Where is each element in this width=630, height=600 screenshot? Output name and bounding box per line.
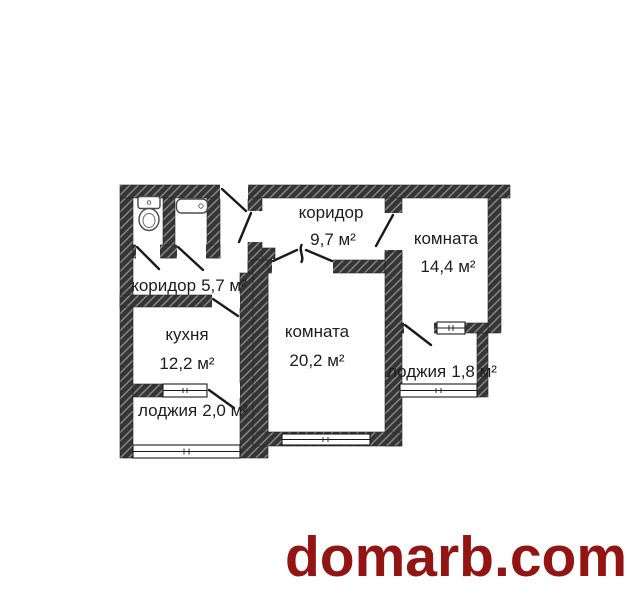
wall-right-outer — [488, 198, 501, 333]
toilet-icon — [138, 197, 160, 231]
label-loggia-right-area: 1,8 м² — [451, 362, 497, 381]
label-loggia-bottom: лоджия2,0 м² — [138, 401, 248, 420]
label-kitchen-name: кухня — [165, 325, 208, 344]
room144-window — [437, 322, 465, 334]
label-kitchen-area: 12,2 м² — [159, 354, 214, 373]
room202-window — [282, 434, 370, 445]
label-corridor-small-area: 5,7 м² — [201, 276, 247, 295]
label-room-center-name: комната — [285, 322, 350, 341]
room144-door-opening — [384, 213, 403, 250]
loggia20-door-opening — [207, 383, 240, 398]
label-loggia-bottom-area: 2,0 м² — [202, 401, 248, 420]
label-loggia-bottom-name: лоджия — [138, 401, 197, 420]
watermark: domarb.com — [285, 525, 627, 589]
wall-top-outer — [120, 185, 510, 198]
label-loggia-right-name: лоджия — [387, 362, 446, 381]
wall-room202-left — [253, 260, 268, 446]
label-corridor-small: коридор5,7 м² — [131, 276, 247, 295]
apartment-floor-plan: коридор 9,7 м² комната 14,4 м² коридор5,… — [0, 0, 630, 600]
background — [0, 0, 630, 600]
bathtub-icon — [177, 199, 208, 213]
label-room-center-area: 20,2 м² — [289, 351, 344, 370]
label-corridor-top-name: коридор — [299, 203, 364, 222]
wall-room202-right — [385, 252, 402, 446]
label-corridor-small-name: коридор — [131, 276, 196, 295]
label-room-top-right-area: 14,4 м² — [420, 257, 475, 276]
wall-corridor-nub — [262, 248, 275, 260]
kitchen-window — [163, 384, 207, 397]
loggia20-window — [133, 445, 240, 458]
wall-left-outer — [120, 198, 133, 458]
page: коридор 9,7 м² комната 14,4 м² коридор5,… — [0, 0, 630, 600]
label-loggia-right: лоджия1,8 м² — [387, 362, 497, 381]
loggia18-window — [400, 384, 477, 397]
label-corridor-top-area: 9,7 м² — [310, 230, 356, 249]
label-room-top-right-name: комната — [414, 229, 479, 248]
